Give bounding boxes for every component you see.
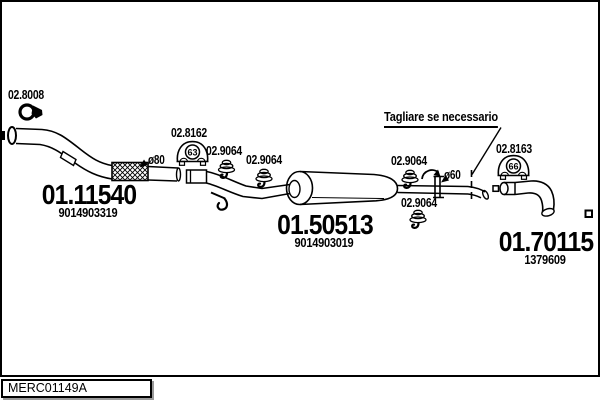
diagram-code: MERC01149A bbox=[1, 379, 152, 398]
hanger-bracket bbox=[211, 193, 227, 210]
mount-badge-66: 66 bbox=[508, 161, 518, 171]
diameter-label-rear: ø60 bbox=[444, 169, 461, 182]
front-pipe-drawing bbox=[16, 129, 112, 180]
part-oem-tail-pipe: 1379609 bbox=[524, 253, 565, 267]
clamp-icon bbox=[20, 105, 43, 119]
marker-square bbox=[586, 211, 593, 218]
tail-sleeve bbox=[500, 183, 515, 195]
rubber-hanger-icon bbox=[219, 160, 235, 178]
rotation-arrow-icon bbox=[422, 170, 441, 180]
part-ref-hanger-3: 02.9064 bbox=[391, 154, 427, 168]
diameter-label-front: ø80 bbox=[148, 154, 165, 167]
rubber-hanger-icon bbox=[410, 210, 426, 228]
part-oem-middle-silencer: 9014903019 bbox=[295, 236, 354, 250]
front-flange bbox=[0, 127, 16, 144]
rubber-hanger-icon bbox=[256, 169, 272, 187]
mid-pipe-drawing bbox=[207, 172, 291, 199]
part-ref-mount-left: 02.8162 bbox=[171, 126, 207, 140]
silencer-drawing bbox=[287, 172, 398, 205]
part-ref-hanger-1: 02.9064 bbox=[206, 144, 242, 158]
part-oem-front-pipe: 9014903319 bbox=[59, 206, 118, 220]
part-ref-front-clamp: 02.8008 bbox=[8, 88, 44, 102]
cut-note: Tagliare se necessario bbox=[384, 110, 498, 128]
part-ref-hanger-2: 02.9064 bbox=[246, 153, 282, 167]
tail-pipe-drawing bbox=[515, 181, 555, 217]
exhaust-parts-diagram: 63 66 02.8008 01.11540 9014903319 ø80 02… bbox=[0, 0, 600, 400]
pipe-coupler bbox=[187, 170, 207, 183]
part-ref-mount-right: 02.8163 bbox=[496, 142, 532, 156]
tail-bolt bbox=[493, 186, 499, 192]
mount-badge-63: 63 bbox=[187, 147, 197, 157]
part-ref-hanger-4: 02.9064 bbox=[401, 196, 437, 210]
